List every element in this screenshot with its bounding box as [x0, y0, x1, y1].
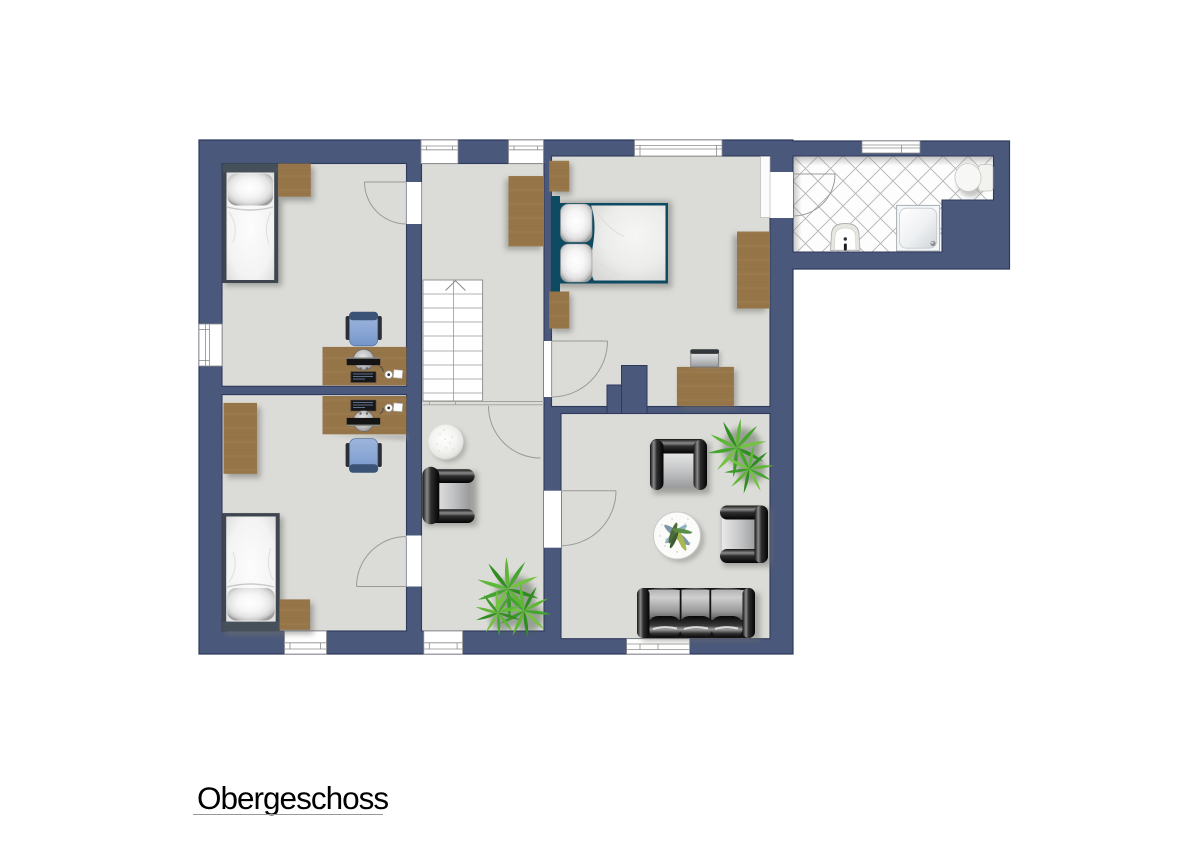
svg-text:Obergeschoss: Obergeschoss — [197, 780, 388, 816]
